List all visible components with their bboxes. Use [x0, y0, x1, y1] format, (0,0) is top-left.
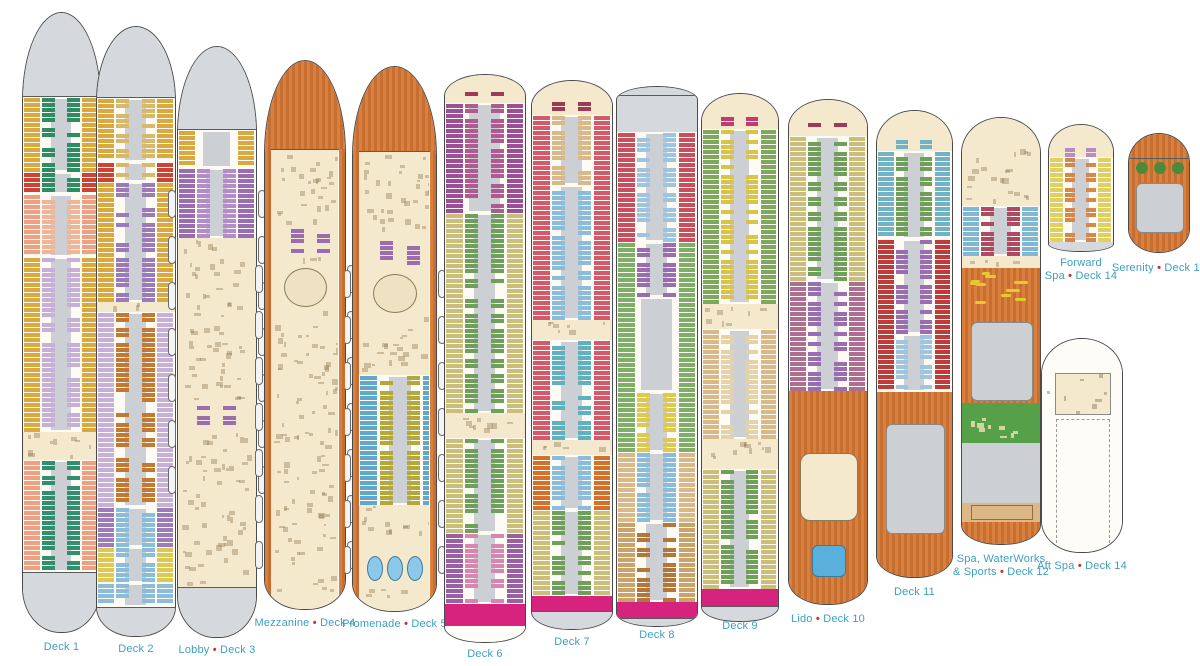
- deck-plan-deck-10[interactable]: [788, 99, 868, 605]
- lifeboat-icon: [168, 420, 176, 448]
- lifeboat-icon: [168, 282, 176, 310]
- ship-deck-10: Lido • Deck 10: [779, 99, 877, 665]
- ship-deck-6: Deck 6: [435, 74, 535, 666]
- deck-plan-deck-3[interactable]: [177, 46, 257, 638]
- lifeboat-icon: [168, 466, 176, 494]
- lifeboat-icon: [168, 236, 176, 264]
- lifeboat-icon: [168, 328, 176, 356]
- deck-plan-deck-9[interactable]: [701, 93, 779, 622]
- ship-deck-9: Deck 9: [692, 93, 788, 666]
- lifeboat-icon: [255, 357, 263, 385]
- lifeboat-icon: [168, 190, 176, 218]
- lifeboat-icon: [255, 541, 263, 569]
- deck-plan-deck-6[interactable]: [444, 74, 526, 643]
- lifeboat-icon: [255, 265, 263, 293]
- deck-plan-deck-15[interactable]: [1128, 133, 1190, 253]
- deck-plan-deck-8[interactable]: [616, 86, 698, 627]
- lifeboat-icon: [255, 311, 263, 339]
- deck-plan-deck-14-aft[interactable]: [1041, 338, 1123, 553]
- lifeboat-icon: [255, 449, 263, 477]
- deck-plan-deck-5[interactable]: [352, 66, 437, 612]
- ship-deck-3: Lobby • Deck 3: [168, 46, 266, 666]
- deck-plan-deck-12[interactable]: [961, 117, 1041, 545]
- ship-deck-4: Mezzanine • Deck 4: [255, 60, 355, 666]
- ship-deck-15: Serenity • Deck 15: [1119, 133, 1199, 313]
- deck-plan-deck-2[interactable]: [96, 26, 176, 637]
- deck-plan-deck-14-forward[interactable]: [1048, 124, 1114, 252]
- deck-plans-canvas: Deck 1Deck 2Lobby • Deck 3Mezzanine • De…: [0, 0, 1200, 666]
- lifeboat-icon: [255, 495, 263, 523]
- ship-deck-5: Promenade • Deck 5: [343, 66, 446, 666]
- lifeboat-icon: [168, 374, 176, 402]
- deck-plan-deck-7[interactable]: [531, 80, 613, 630]
- ship-deck-14-aft: Aft Spa • Deck 14: [1032, 338, 1132, 613]
- lifeboat-icon: [255, 403, 263, 431]
- ship-deck-14-forward: ForwardSpa • Deck 14: [1039, 124, 1123, 312]
- deck-label-deck-14-aft: Aft Spa • Deck 14: [992, 560, 1172, 573]
- deck-label-deck-15: Serenity • Deck 15: [1079, 262, 1200, 275]
- deck-plan-deck-4[interactable]: [264, 60, 346, 610]
- deck-plan-deck-11[interactable]: [876, 110, 953, 578]
